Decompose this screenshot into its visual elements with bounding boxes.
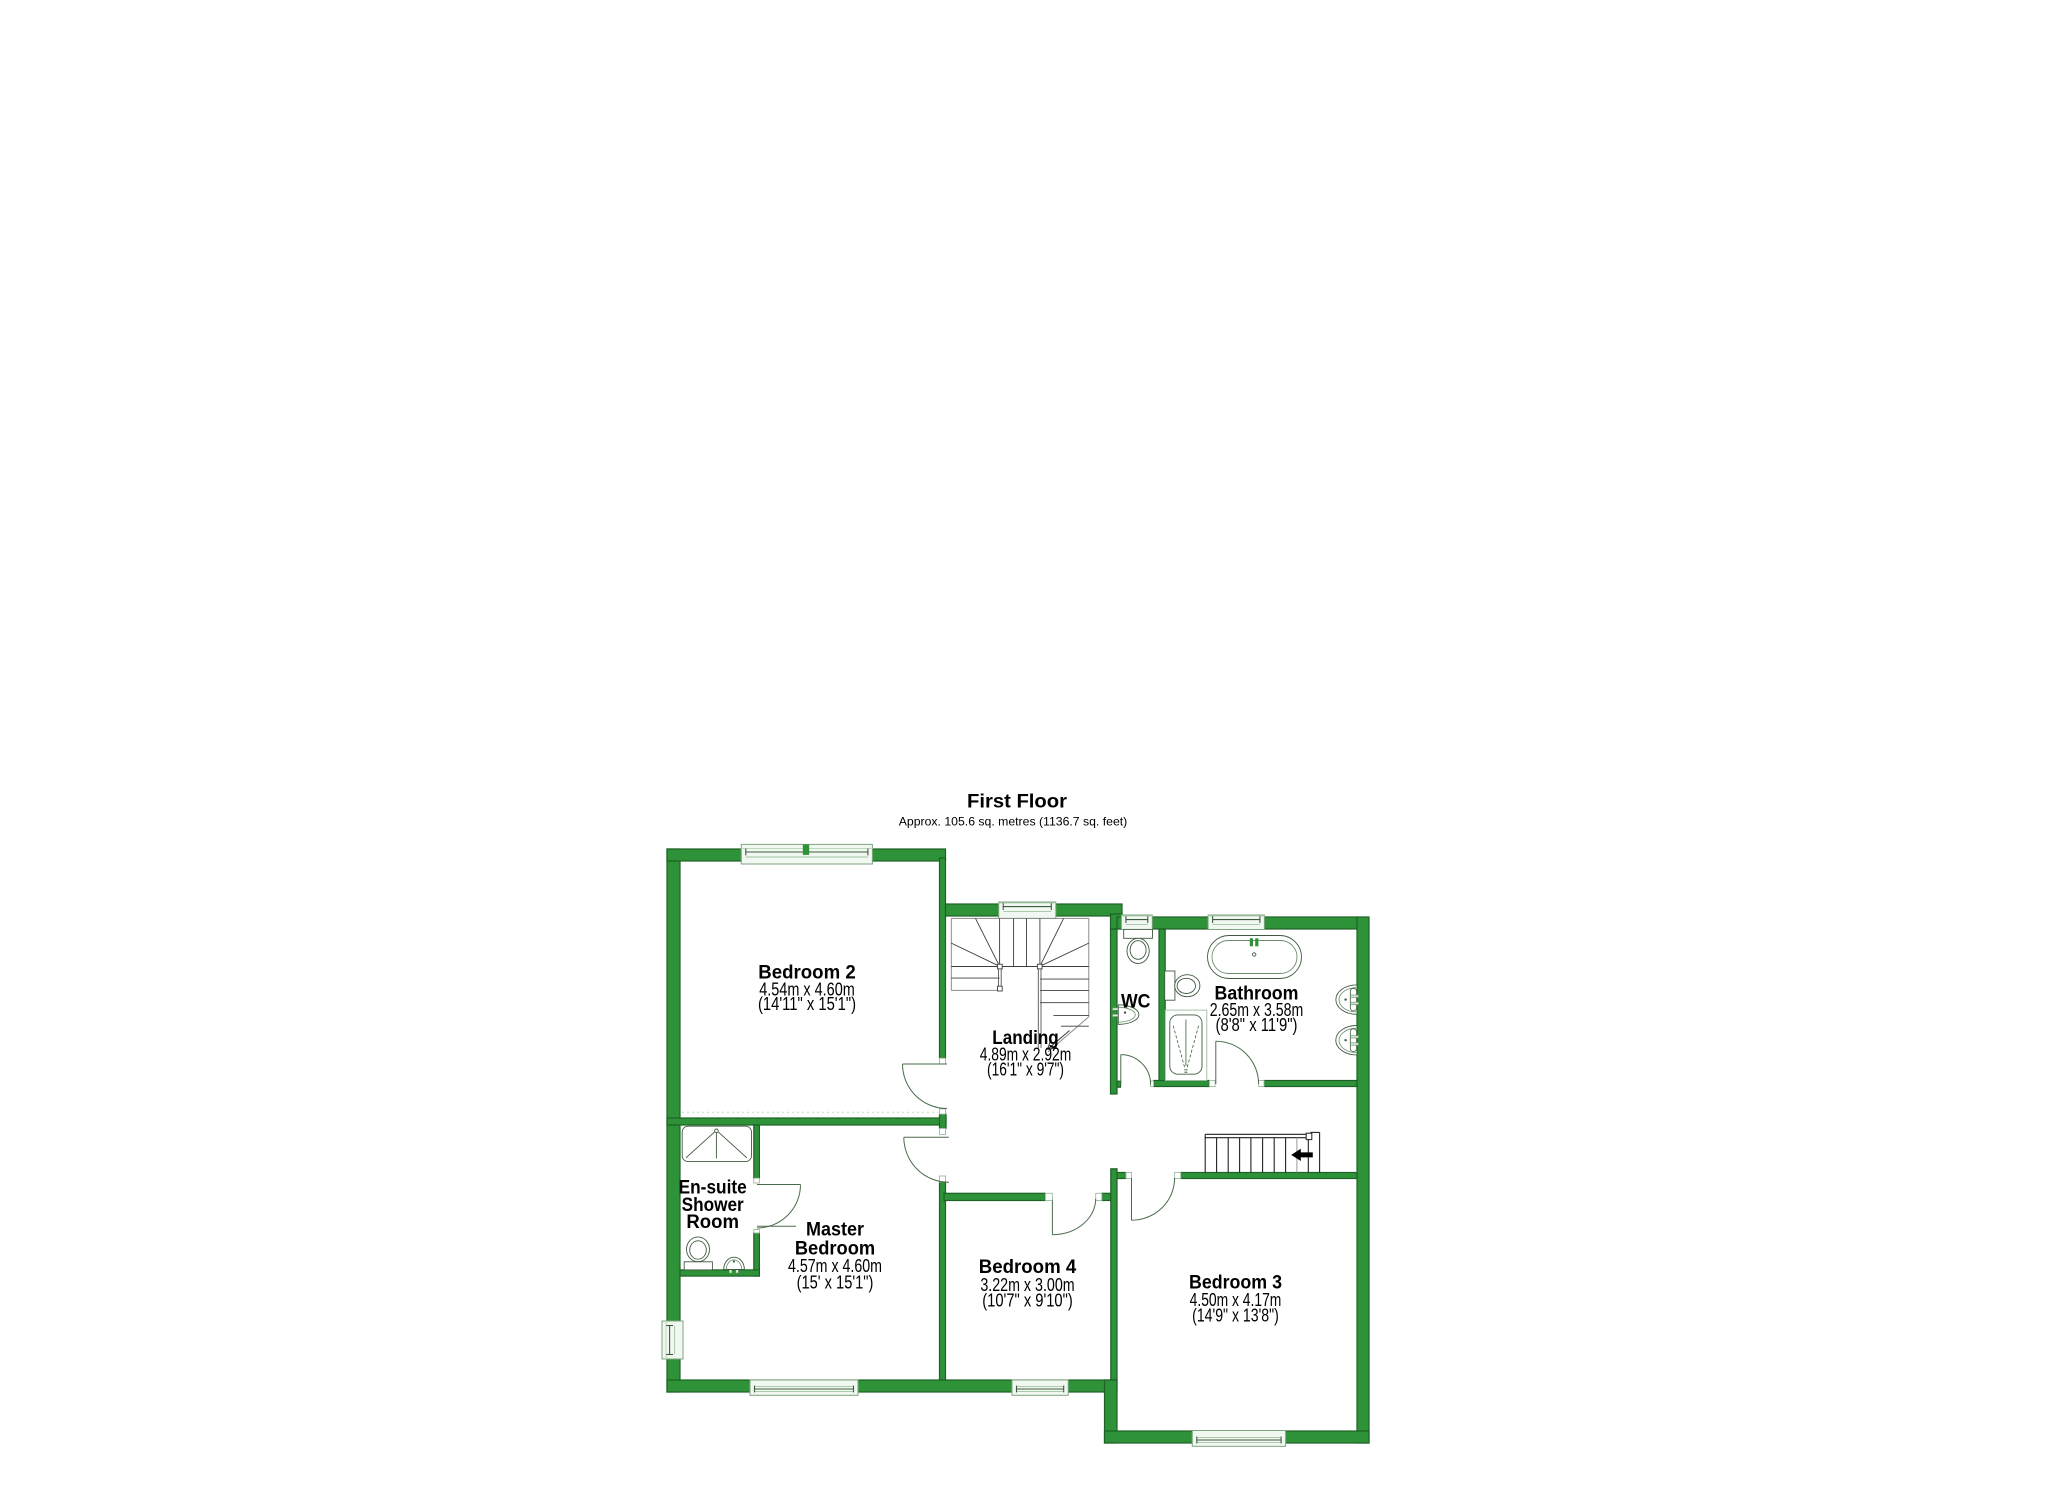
svg-text:(16'1" x 9'7"): (16'1" x 9'7"): [987, 1058, 1064, 1079]
svg-text:(15' x 15'1"): (15' x 15'1"): [797, 1271, 874, 1292]
svg-text:(14'11" x 15'1"): (14'11" x 15'1"): [758, 993, 856, 1014]
svg-text:(8'8" x 11'9"): (8'8" x 11'9"): [1216, 1014, 1298, 1035]
svg-text:(10'7" x 9'10"): (10'7" x 9'10"): [982, 1289, 1073, 1310]
svg-text:WC: WC: [1121, 991, 1151, 1012]
svg-text:Approx. 105.6 sq. metres (1136: Approx. 105.6 sq. metres (1136.7 sq. fee…: [899, 815, 1128, 829]
svg-text:(14'9" x 13'8"): (14'9" x 13'8"): [1192, 1305, 1279, 1326]
svg-text:Room: Room: [686, 1212, 739, 1233]
svg-text:First Floor: First Floor: [967, 792, 1068, 813]
